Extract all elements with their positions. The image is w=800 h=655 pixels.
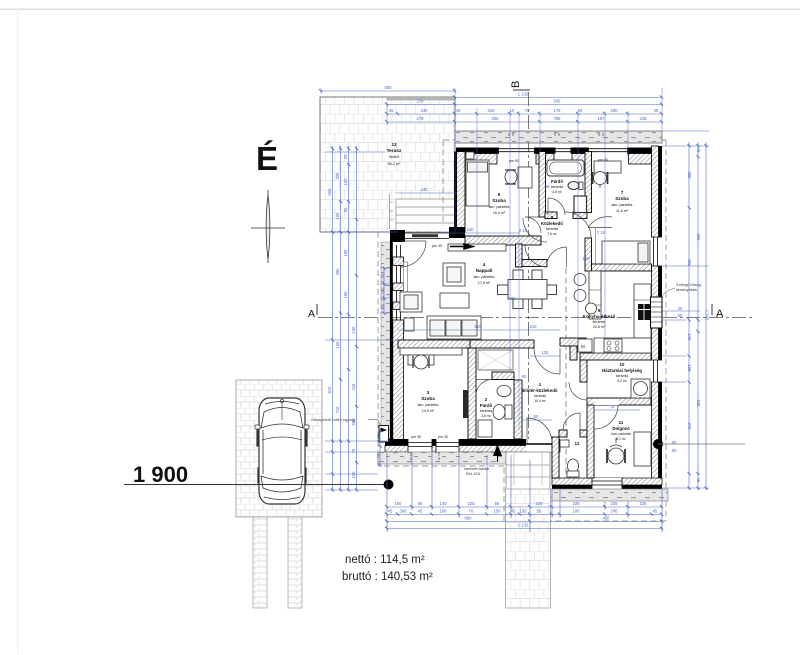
svg-text:150: 150	[343, 178, 348, 186]
svg-text:60: 60	[672, 440, 677, 445]
svg-text:130: 130	[542, 350, 550, 355]
svg-text:45: 45	[653, 509, 658, 514]
svg-text:550: 550	[385, 85, 393, 90]
svg-text:A: A	[308, 308, 315, 320]
svg-text:165: 165	[335, 341, 340, 349]
svg-text:225: 225	[468, 501, 476, 506]
svg-text:90: 90	[343, 207, 348, 212]
svg-text:lam. parketta: lam. parketta	[418, 403, 439, 407]
svg-text:kerámia: kerámia	[546, 227, 558, 231]
svg-text:187: 187	[598, 116, 606, 121]
svg-text:90: 90	[380, 273, 385, 278]
svg-text:Közlekedő: Közlekedő	[541, 221, 563, 226]
svg-text:4: 4	[483, 262, 486, 267]
svg-text:100: 100	[573, 509, 581, 514]
svg-text:150: 150	[376, 434, 381, 442]
svg-text:278: 278	[417, 99, 425, 104]
svg-text:210: 210	[380, 287, 385, 295]
svg-text:455: 455	[687, 259, 692, 267]
svg-text:45: 45	[511, 509, 516, 514]
svg-text:pm 90: pm 90	[598, 158, 608, 162]
svg-text:15 74: 15 74	[437, 453, 441, 461]
svg-text:B: B	[510, 81, 522, 88]
svg-text:180: 180	[440, 509, 448, 514]
svg-text:7,6 m²: 7,6 m²	[547, 232, 557, 236]
svg-text:45: 45	[545, 184, 550, 189]
svg-text:90: 90	[418, 501, 423, 506]
svg-text:210: 210	[530, 324, 538, 329]
svg-text:kéményblokk: kéményblokk	[676, 288, 697, 292]
svg-text:Háztartási helyiség: Háztartási helyiség	[602, 368, 642, 373]
svg-text:155: 155	[343, 291, 348, 299]
svg-text:kerámia: kerámia	[593, 320, 606, 324]
svg-text:Nappali: Nappali	[476, 268, 493, 273]
svg-text:50: 50	[537, 509, 542, 514]
svg-text:785: 785	[554, 116, 562, 121]
svg-text:390: 390	[335, 268, 340, 276]
svg-text:36,2 m²: 36,2 m²	[388, 162, 402, 166]
svg-text:225: 225	[611, 501, 619, 506]
svg-text:bruttó : 140,53 m²: bruttó : 140,53 m²	[342, 571, 433, 583]
svg-text:690: 690	[465, 516, 473, 521]
svg-text:1 132: 1 132	[518, 92, 529, 97]
svg-text:105: 105	[335, 212, 340, 220]
svg-text:2 10: 2 10	[519, 228, 528, 233]
svg-text:175: 175	[554, 108, 562, 113]
svg-text:45: 45	[654, 108, 659, 113]
svg-text:45: 45	[389, 108, 394, 113]
svg-text:815: 815	[327, 386, 332, 394]
svg-text:pm 30: pm 30	[411, 435, 421, 439]
svg-text:240: 240	[467, 227, 475, 232]
svg-text:400: 400	[509, 296, 517, 301]
svg-text:7: 7	[621, 190, 624, 195]
svg-text:415: 415	[351, 383, 356, 391]
svg-text:70: 70	[469, 509, 474, 514]
svg-text:13: 13	[391, 142, 397, 147]
svg-text:150: 150	[395, 501, 403, 506]
svg-text:Előtér-közlekedő: Előtér-közlekedő	[522, 388, 557, 393]
svg-text:550: 550	[327, 188, 332, 196]
svg-text:Terasz: Terasz	[387, 148, 402, 154]
svg-text:45: 45	[343, 154, 348, 159]
svg-text:225: 225	[640, 501, 648, 506]
svg-text:pm 90: pm 90	[509, 159, 519, 163]
svg-text:kerámia: kerámia	[534, 394, 546, 398]
svg-text:8,1 m²: 8,1 m²	[616, 437, 626, 441]
svg-text:3: 3	[427, 390, 430, 395]
svg-text:20: 20	[678, 306, 683, 311]
svg-text:Dolgozó: Dolgozó	[612, 426, 630, 431]
svg-text:Konyha-étkező: Konyha-étkező	[583, 314, 616, 319]
svg-text:1 900: 1 900	[133, 462, 188, 487]
svg-text:190: 190	[343, 249, 348, 257]
svg-text:45: 45	[388, 509, 393, 514]
svg-text:140: 140	[440, 501, 448, 506]
svg-text:580: 580	[351, 418, 356, 426]
svg-text:10,4 m²: 10,4 m²	[534, 399, 546, 403]
svg-text:É: É	[256, 140, 278, 177]
svg-text:630: 630	[696, 400, 701, 408]
svg-text:45: 45	[696, 478, 701, 483]
svg-text:lam. parketta: lam. parketta	[489, 205, 510, 209]
svg-text:75: 75	[610, 404, 615, 409]
svg-text:45: 45	[696, 148, 701, 153]
svg-text:60: 60	[672, 448, 677, 453]
svg-text:M: M	[581, 344, 585, 349]
svg-text:225: 225	[536, 501, 544, 506]
svg-text:255: 255	[492, 116, 500, 121]
svg-text:120: 120	[583, 256, 591, 261]
svg-text:225: 225	[640, 116, 648, 121]
svg-text:12: 12	[575, 441, 580, 446]
svg-text:szinezett vakolat: szinezett vakolat	[464, 467, 489, 471]
svg-text:225: 225	[573, 501, 581, 506]
svg-text:11: 11	[619, 420, 624, 425]
svg-text:105: 105	[687, 365, 692, 373]
svg-text:150: 150	[494, 509, 502, 514]
svg-text:kerámia: kerámia	[480, 409, 492, 413]
svg-text:515: 515	[475, 324, 483, 329]
svg-text:nettó : 114,5 m²: nettó : 114,5 m²	[345, 554, 425, 566]
svg-text:45: 45	[456, 108, 461, 113]
svg-text:655: 655	[696, 234, 701, 242]
svg-text:60: 60	[534, 414, 539, 419]
svg-text:pm 30: pm 30	[432, 244, 442, 248]
svg-text:11,6 m²: 11,6 m²	[616, 209, 629, 213]
svg-text:5,2 m²: 5,2 m²	[617, 379, 627, 383]
svg-text:Fürdő: Fürdő	[480, 403, 493, 408]
svg-text:16,4 m²: 16,4 m²	[493, 211, 506, 215]
svg-text:15 74: 15 74	[409, 453, 413, 461]
svg-text:2 15: 2 15	[597, 230, 606, 235]
svg-text:lam. parketta: lam. parketta	[611, 432, 631, 436]
svg-text:kerámia: kerámia	[616, 374, 628, 378]
svg-text:kerámia: kerámia	[551, 185, 563, 189]
svg-text:90: 90	[511, 132, 515, 136]
svg-text:250: 250	[687, 172, 692, 180]
svg-text:278: 278	[417, 116, 425, 121]
svg-text:Szoba: Szoba	[492, 198, 506, 203]
svg-text:90: 90	[380, 303, 385, 308]
svg-text:60: 60	[678, 313, 683, 318]
svg-text:230: 230	[421, 108, 429, 113]
svg-text:Fürdő: Fürdő	[551, 179, 563, 184]
svg-text:130: 130	[351, 326, 356, 334]
svg-text:300: 300	[400, 509, 408, 514]
svg-text:245: 245	[611, 509, 619, 514]
svg-text:160: 160	[351, 471, 356, 479]
svg-text:9: 9	[598, 308, 601, 313]
svg-text:75: 75	[351, 448, 356, 453]
svg-text:935: 935	[554, 99, 562, 104]
svg-text:lam. parketta: lam. parketta	[474, 275, 495, 279]
svg-text:3,6 m²: 3,6 m²	[481, 414, 491, 418]
svg-text:45: 45	[418, 509, 423, 514]
svg-text:4,6 m²: 4,6 m²	[552, 190, 562, 194]
svg-text:10: 10	[620, 362, 625, 367]
svg-text:310: 310	[488, 108, 496, 113]
svg-text:710: 710	[335, 406, 340, 414]
svg-text:240: 240	[421, 187, 429, 192]
svg-text:105: 105	[520, 509, 528, 514]
svg-text:305: 305	[335, 172, 340, 180]
svg-text:10: 10	[510, 108, 515, 113]
svg-text:fedett: fedett	[389, 155, 399, 159]
svg-text:pm 30: pm 30	[438, 435, 448, 439]
svg-text:370: 370	[687, 423, 692, 431]
svg-text:90: 90	[601, 132, 605, 136]
svg-text:RAL 1011: RAL 1011	[466, 472, 481, 476]
svg-text:17,6 m²: 17,6 m²	[478, 281, 491, 285]
svg-text:5: 5	[498, 192, 501, 197]
svg-text:145: 145	[687, 334, 692, 342]
svg-text:22,6 m²: 22,6 m²	[593, 325, 606, 329]
svg-text:450: 450	[603, 516, 611, 521]
svg-text:75: 75	[376, 453, 381, 458]
svg-text:A: A	[716, 308, 724, 320]
svg-text:Szoba: Szoba	[421, 396, 435, 401]
svg-text:1 345: 1 345	[705, 310, 710, 321]
svg-text:1 132: 1 132	[518, 523, 529, 528]
svg-text:55: 55	[495, 501, 500, 506]
svg-text:260: 260	[611, 108, 619, 113]
svg-text:14,5 m²: 14,5 m²	[422, 409, 435, 413]
svg-text:50: 50	[578, 108, 583, 113]
svg-text:lam. parketta: lam. parketta	[612, 203, 633, 207]
svg-text:90: 90	[522, 374, 527, 379]
svg-text:70: 70	[525, 108, 530, 113]
svg-text:Szoba: Szoba	[615, 196, 629, 201]
svg-text:90: 90	[557, 132, 561, 136]
